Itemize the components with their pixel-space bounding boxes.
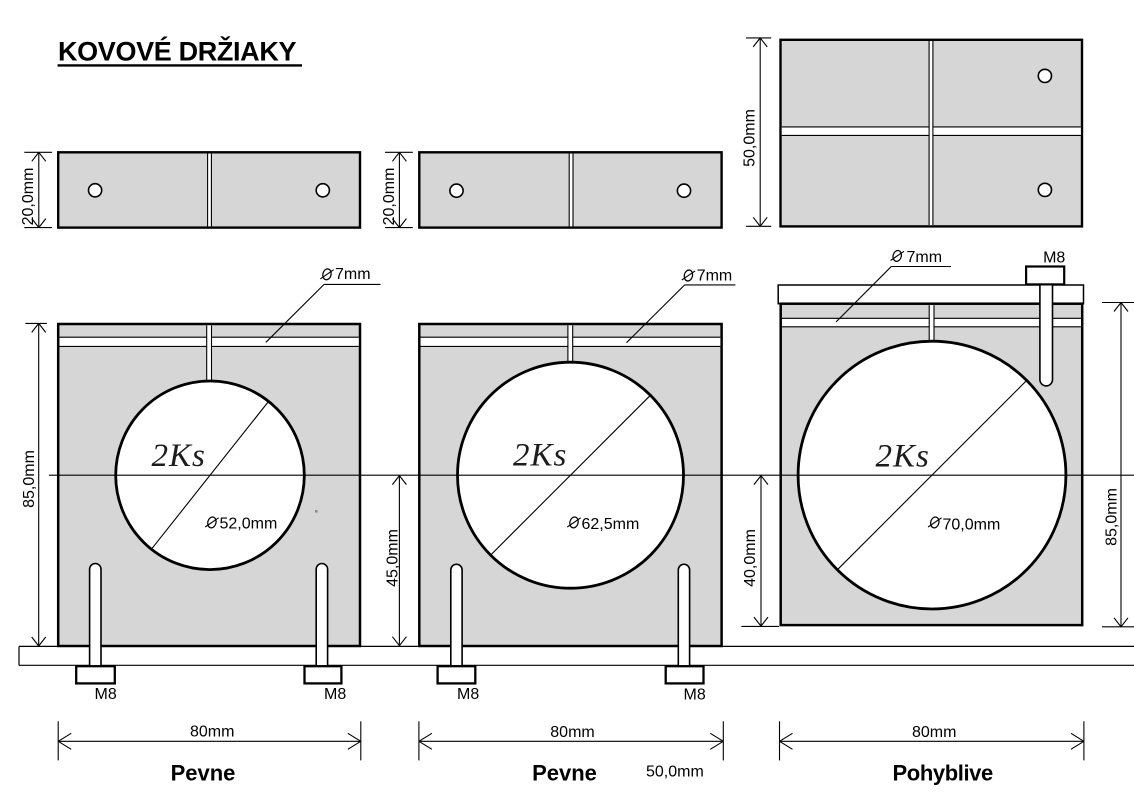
svg-text:80mm: 80mm: [912, 724, 956, 741]
svg-text:85,0mm: 85,0mm: [21, 450, 38, 508]
svg-text:2Ks: 2Ks: [513, 438, 567, 474]
svg-text:40,0mm: 40,0mm: [742, 529, 759, 587]
svg-text:Pevne: Pevne: [532, 760, 597, 785]
svg-text:M8: M8: [95, 686, 117, 703]
svg-text:20,0mm: 20,0mm: [381, 168, 398, 226]
svg-text:KOVOVÉ DRŽIAKY: KOVOVÉ DRŽIAKY: [58, 36, 296, 67]
svg-text:2Ks: 2Ks: [876, 438, 930, 474]
svg-text:50,0mm: 50,0mm: [742, 109, 759, 167]
svg-text:70,0mm: 70,0mm: [943, 516, 1001, 533]
svg-text:M8: M8: [1043, 249, 1065, 266]
svg-text:Pohyblive: Pohyblive: [893, 760, 993, 785]
svg-text:45,0mm: 45,0mm: [384, 529, 401, 587]
svg-text:50,0mm: 50,0mm: [646, 764, 704, 781]
svg-text:7mm: 7mm: [335, 266, 371, 283]
svg-text:7mm: 7mm: [697, 268, 733, 285]
svg-text:52,0mm: 52,0mm: [220, 516, 278, 533]
svg-text:2Ks: 2Ks: [152, 438, 206, 474]
svg-text:80mm: 80mm: [550, 724, 594, 741]
svg-text:7mm: 7mm: [907, 249, 943, 266]
svg-text:M8: M8: [457, 686, 479, 703]
svg-text:20,0mm: 20,0mm: [20, 168, 37, 226]
svg-text:Pevne: Pevne: [171, 761, 236, 786]
svg-text:62,5mm: 62,5mm: [582, 516, 640, 533]
svg-text:80mm: 80mm: [190, 723, 234, 740]
svg-text:M8: M8: [324, 686, 346, 703]
svg-text:85,0mm: 85,0mm: [1103, 488, 1120, 546]
svg-text:M8: M8: [684, 686, 706, 703]
